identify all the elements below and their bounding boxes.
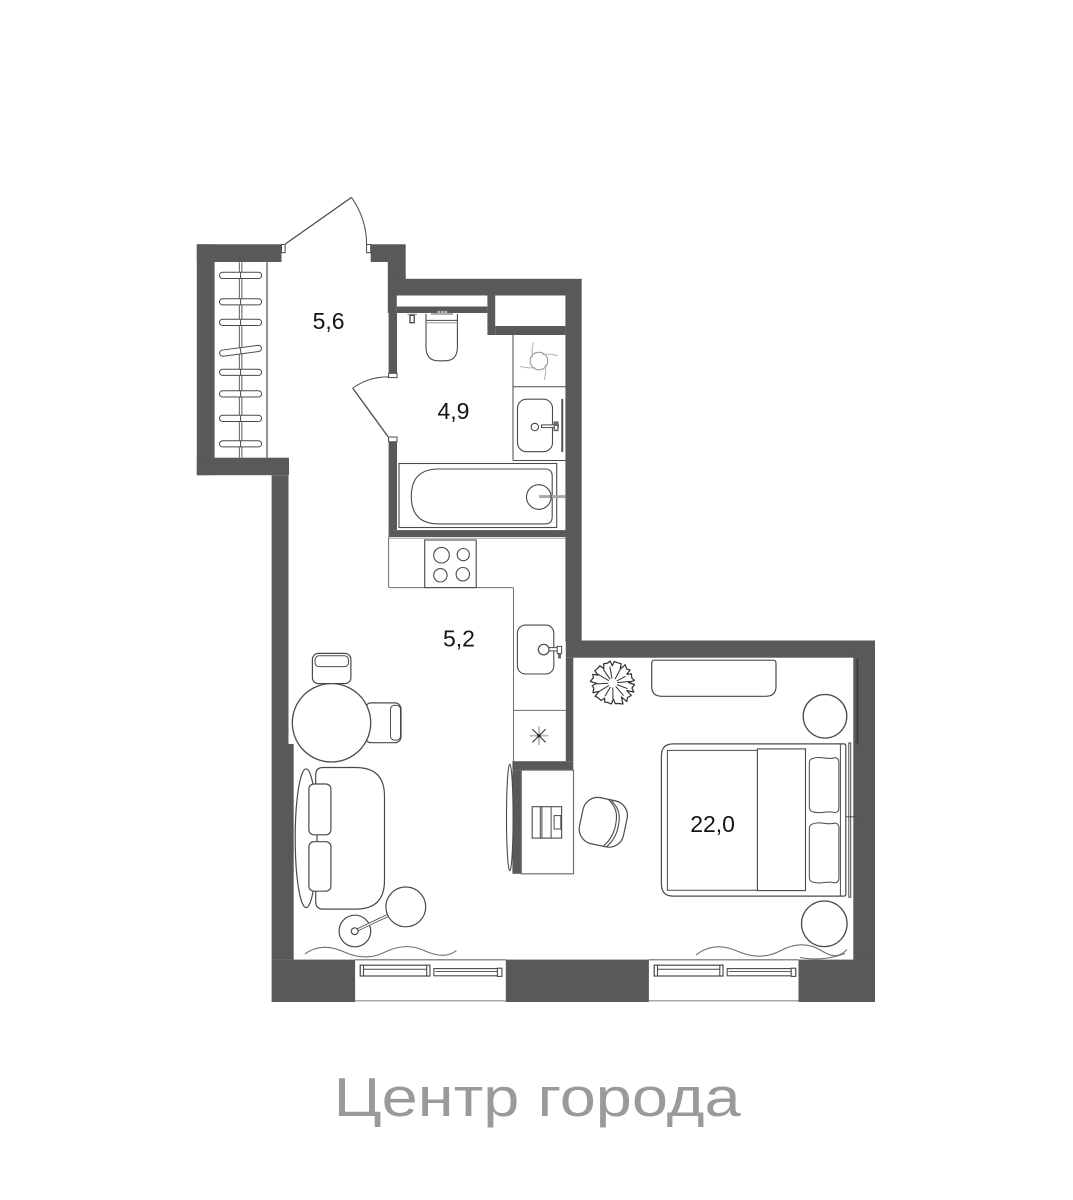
svg-text:Центр города: Центр города (334, 1066, 741, 1128)
svg-text:4,9: 4,9 (438, 398, 470, 424)
svg-text:22,0: 22,0 (690, 811, 735, 837)
svg-text:5,6: 5,6 (313, 308, 345, 334)
svg-text:5,2: 5,2 (443, 625, 475, 651)
